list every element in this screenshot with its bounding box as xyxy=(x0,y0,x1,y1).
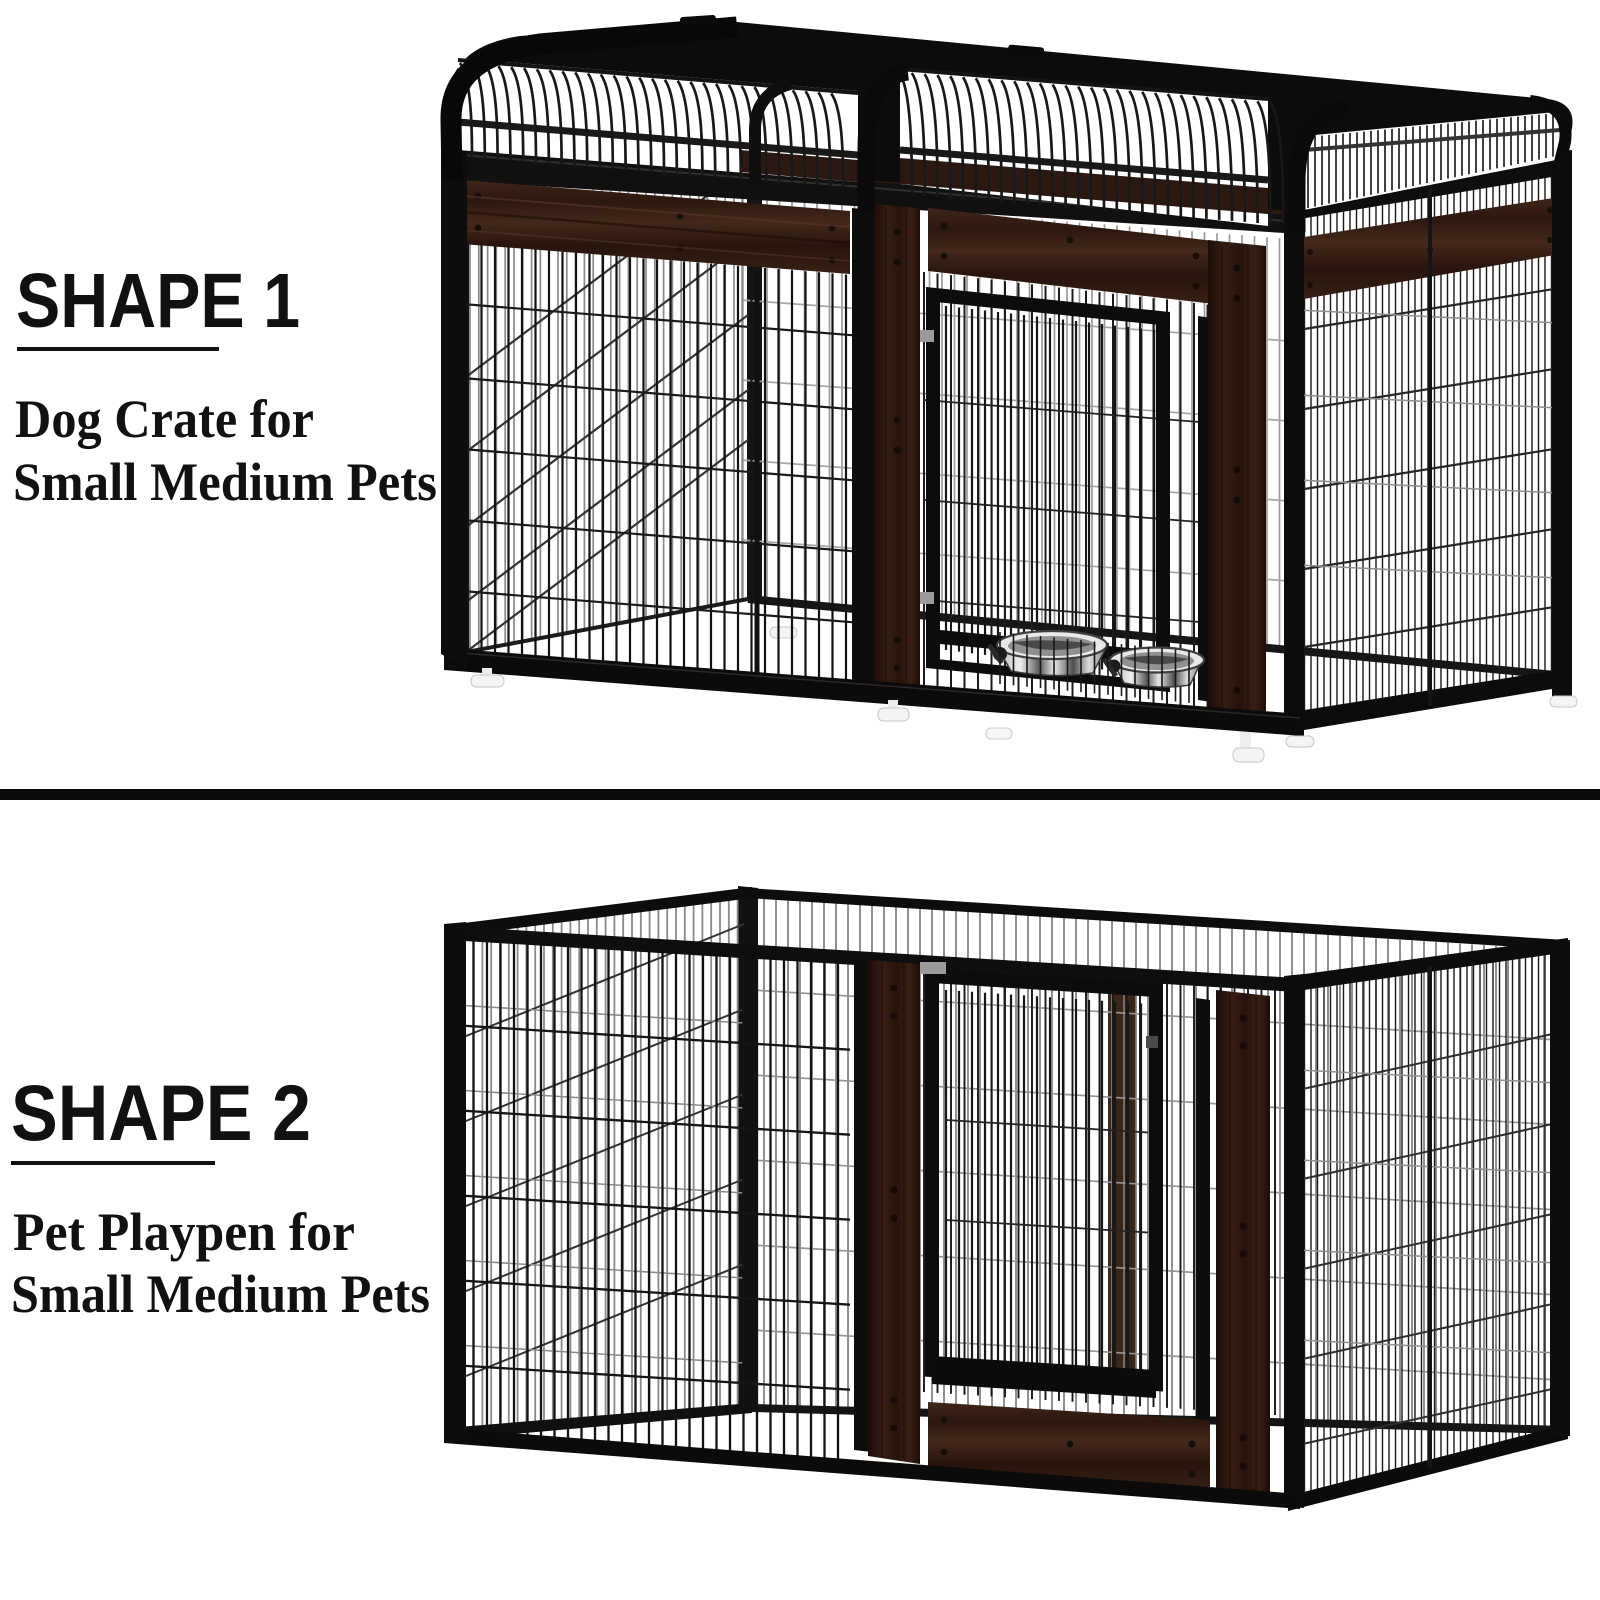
svg-text:SHAPE 2: SHAPE 2 xyxy=(11,1068,311,1157)
svg-text:SHAPE 1: SHAPE 1 xyxy=(16,258,300,344)
svg-text:Pet Playpen for: Pet Playpen for xyxy=(13,1202,355,1262)
svg-text:Small Medium Pets: Small Medium Pets xyxy=(11,1264,430,1324)
svg-text:Small Medium Pets: Small Medium Pets xyxy=(13,452,437,512)
svg-text:Dog Crate for: Dog Crate for xyxy=(15,389,314,449)
